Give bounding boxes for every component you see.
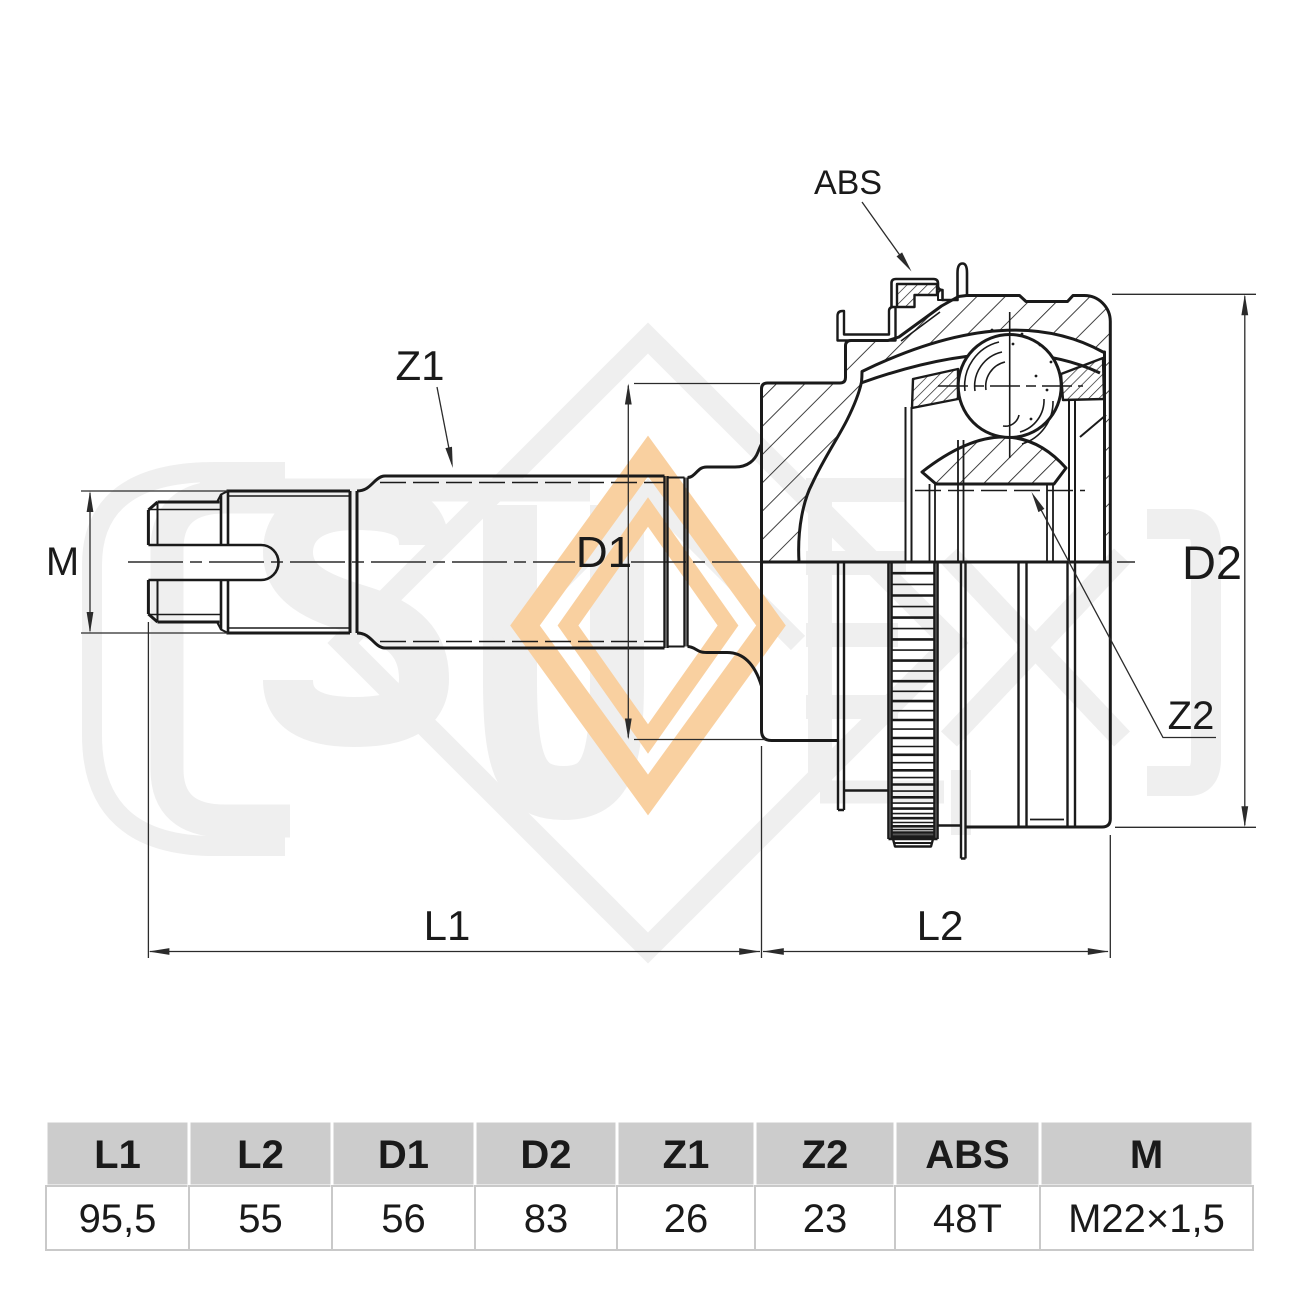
svg-text:D1: D1 bbox=[378, 1133, 429, 1177]
svg-text:Z1: Z1 bbox=[663, 1133, 710, 1177]
svg-text:ABS: ABS bbox=[925, 1133, 1009, 1177]
svg-text:95,5: 95,5 bbox=[79, 1197, 157, 1241]
svg-text:M: M bbox=[46, 540, 79, 584]
svg-text:D2: D2 bbox=[520, 1133, 571, 1177]
svg-text:D1: D1 bbox=[576, 528, 632, 577]
svg-text:L2: L2 bbox=[917, 902, 964, 949]
svg-text:ABS: ABS bbox=[814, 164, 882, 202]
svg-text:23: 23 bbox=[803, 1197, 848, 1241]
svg-text:55: 55 bbox=[238, 1197, 283, 1241]
svg-text:L2: L2 bbox=[237, 1133, 284, 1177]
svg-text:26: 26 bbox=[664, 1197, 709, 1241]
svg-text:L1: L1 bbox=[424, 902, 471, 949]
svg-text:L1: L1 bbox=[94, 1133, 141, 1177]
svg-text:D2: D2 bbox=[1182, 536, 1242, 589]
svg-text:Z2: Z2 bbox=[802, 1133, 849, 1177]
svg-text:56: 56 bbox=[381, 1197, 426, 1241]
svg-text:Z2: Z2 bbox=[1168, 694, 1215, 738]
svg-text:M22×1,5: M22×1,5 bbox=[1068, 1197, 1225, 1241]
svg-text:48T: 48T bbox=[933, 1197, 1002, 1241]
svg-text:83: 83 bbox=[524, 1197, 569, 1241]
svg-text:M: M bbox=[1130, 1133, 1163, 1177]
svg-text:Z1: Z1 bbox=[395, 342, 444, 389]
